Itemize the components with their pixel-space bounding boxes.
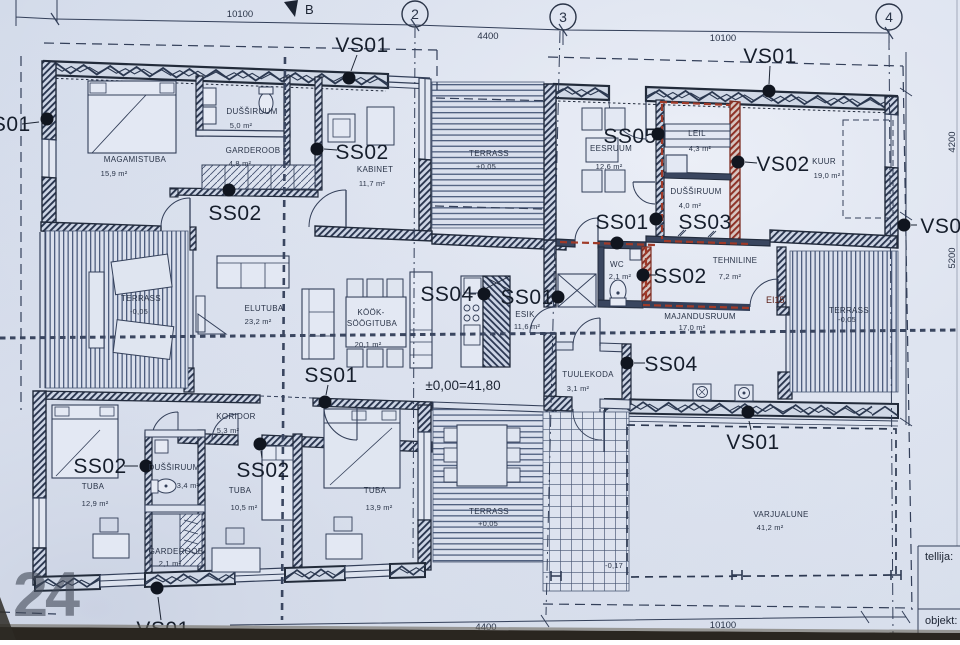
svg-text:SS01: SS01 [500, 286, 553, 309]
svg-text:12,9 m²: 12,9 m² [82, 499, 109, 508]
svg-text:objekt:: objekt: [925, 615, 957, 627]
svg-text:TUBA: TUBA [229, 486, 252, 495]
svg-text:VS01: VS01 [726, 431, 779, 454]
svg-text:MAJANDUSRUUM: MAJANDUSRUUM [664, 312, 736, 321]
svg-text:3,4 m²: 3,4 m² [177, 481, 200, 490]
svg-text:4,0 m²: 4,0 m² [679, 201, 702, 210]
svg-text:KÖÖK-: KÖÖK- [357, 308, 384, 317]
svg-text:4200: 4200 [947, 131, 958, 152]
svg-text:4: 4 [885, 9, 893, 25]
svg-text:TERRASS: TERRASS [121, 294, 161, 303]
svg-text:+0,05: +0,05 [478, 519, 498, 528]
svg-text:B: B [305, 2, 314, 17]
svg-text:TUBA: TUBA [364, 486, 387, 495]
svg-text:2,1 m²: 2,1 m² [159, 559, 182, 568]
svg-text:SS02: SS02 [335, 141, 388, 164]
svg-text:2,1 m²: 2,1 m² [609, 272, 632, 281]
svg-text:VS01: VS01 [743, 45, 796, 68]
svg-text:TERRASS: TERRASS [829, 306, 869, 315]
svg-text:VS01: VS01 [335, 34, 388, 57]
svg-text:15,9 m²: 15,9 m² [101, 169, 128, 178]
svg-text:LEIL: LEIL [688, 129, 706, 138]
svg-text:WC: WC [610, 260, 624, 269]
svg-text:±0,00=41,80: ±0,00=41,80 [425, 378, 500, 393]
svg-text:19,0 m²: 19,0 m² [814, 171, 841, 180]
svg-text:VS0: VS0 [920, 215, 960, 238]
svg-text:SÖÖGITUBA: SÖÖGITUBA [347, 319, 398, 328]
svg-text:TERRASS: TERRASS [469, 507, 509, 516]
svg-text:-0,05: -0,05 [838, 315, 856, 324]
svg-text:4,8 m²: 4,8 m² [229, 159, 252, 168]
svg-text:DUŠŠIRUUM: DUŠŠIRUUM [670, 187, 721, 196]
svg-text:13,9 m²: 13,9 m² [366, 503, 393, 512]
svg-text:41,2 m²: 41,2 m² [757, 523, 784, 532]
svg-text:tellija:: tellija: [925, 551, 953, 563]
svg-text:2: 2 [411, 6, 419, 22]
svg-text:12,6 m²: 12,6 m² [596, 162, 623, 171]
svg-text:VS01: VS01 [0, 113, 31, 136]
svg-text:11,7 m²: 11,7 m² [359, 179, 386, 188]
svg-text:5,0 m²: 5,0 m² [230, 121, 253, 130]
svg-text:GARDEROOB: GARDEROOB [149, 547, 204, 556]
svg-text:SS03: SS03 [678, 211, 731, 234]
svg-text:ESIK: ESIK [515, 310, 535, 319]
svg-text:-0,17: -0,17 [605, 561, 623, 570]
svg-text:SS02: SS02 [208, 202, 261, 225]
svg-text:SS02: SS02 [653, 265, 706, 288]
svg-text:10100: 10100 [227, 9, 253, 20]
svg-text:VS02: VS02 [756, 153, 809, 176]
svg-text:SS01: SS01 [595, 211, 648, 234]
svg-text:ELUTUBA: ELUTUBA [245, 304, 284, 313]
svg-text:SS02: SS02 [236, 459, 289, 482]
svg-text:5,3 m²: 5,3 m² [217, 426, 240, 435]
svg-text:SS04: SS04 [644, 353, 697, 376]
svg-text:MAGAMISTUBA: MAGAMISTUBA [104, 155, 167, 164]
svg-text:23,2 m²: 23,2 m² [245, 317, 272, 326]
svg-text:SS02: SS02 [73, 455, 126, 478]
svg-text:3: 3 [559, 9, 567, 25]
svg-text:KORIDOR: KORIDOR [216, 412, 255, 421]
svg-text:SS04: SS04 [420, 283, 473, 306]
svg-text:KABINET: KABINET [357, 165, 393, 174]
svg-text:+0,05: +0,05 [476, 162, 496, 171]
svg-text:TUBA: TUBA [82, 482, 105, 491]
svg-text:DUŠŠIRUUM: DUŠŠIRUUM [148, 463, 199, 472]
svg-text:EESRUUM: EESRUUM [590, 144, 632, 153]
svg-text:20,1 m²: 20,1 m² [355, 340, 382, 349]
svg-text:VARJUALUNE: VARJUALUNE [753, 510, 808, 519]
svg-text:7,2 m²: 7,2 m² [719, 272, 742, 281]
svg-text:-0,05: -0,05 [130, 307, 148, 316]
svg-text:10100: 10100 [710, 33, 736, 44]
svg-text:5200: 5200 [947, 247, 958, 268]
svg-text:TUULEKODA: TUULEKODA [562, 370, 614, 379]
svg-text:3,1 m²: 3,1 m² [567, 384, 590, 393]
svg-text:KUUR: KUUR [812, 157, 836, 166]
svg-text:TERRASS: TERRASS [469, 149, 509, 158]
svg-text:DUŠŠIRUUM: DUŠŠIRUUM [226, 107, 277, 116]
svg-text:4,3 m²: 4,3 m² [689, 144, 712, 153]
svg-text:EI15: EI15 [766, 295, 785, 305]
svg-text:10,5 m²: 10,5 m² [231, 503, 258, 512]
svg-text:TEHNILINE: TEHNILINE [713, 256, 758, 265]
svg-text:SS01: SS01 [304, 364, 357, 387]
svg-text:GARDEROOB: GARDEROOB [226, 146, 281, 155]
svg-text:4400: 4400 [477, 31, 498, 42]
svg-text:11,6 m²: 11,6 m² [514, 322, 541, 331]
svg-text:24: 24 [13, 560, 80, 630]
svg-text:17,0 m²: 17,0 m² [679, 323, 706, 332]
